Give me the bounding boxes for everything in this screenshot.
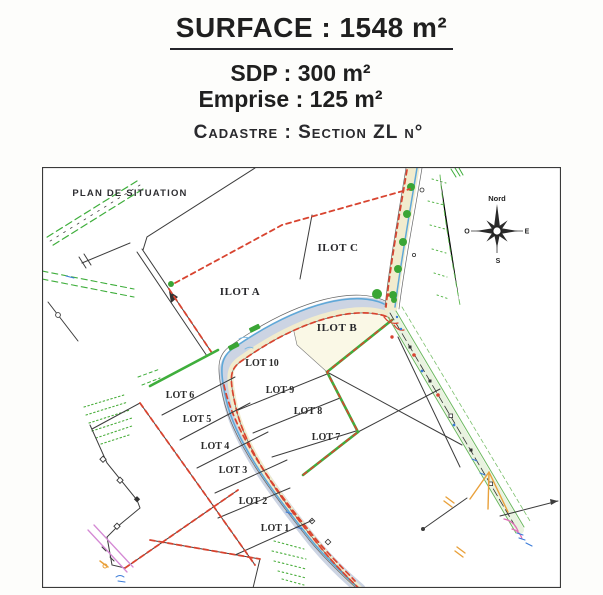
lot-10-label: LOT 10 bbox=[245, 358, 278, 369]
sdp-line: SDP : 300 m² bbox=[0, 60, 602, 87]
tree-icon bbox=[394, 265, 402, 273]
ilot-c-label: ILOT C bbox=[317, 242, 358, 254]
plan-title-label: PLAN DE SITUATION bbox=[72, 188, 187, 199]
lot-7-label: LOT 7 bbox=[312, 432, 340, 443]
ilot-a-label: ILOT A bbox=[220, 286, 260, 298]
lot-3-label: LOT 3 bbox=[219, 465, 247, 476]
compass-west-label: O bbox=[464, 229, 470, 236]
compass-south-label: S bbox=[496, 258, 501, 265]
lot-8-label: LOT 8 bbox=[294, 406, 322, 417]
lot-1-label: LOT 1 bbox=[261, 523, 289, 534]
lot-9-label: LOT 9 bbox=[266, 385, 294, 396]
surface-title-text: SURFACE : 1548 m² bbox=[170, 12, 453, 50]
compass-north-label: Nord bbox=[488, 194, 506, 203]
scanned-plan-page: { "header": { "surface": "SURFACE : 1548… bbox=[0, 0, 603, 595]
page-title: SURFACE : 1548 m² bbox=[10, 12, 603, 50]
cadastre-line: Cadastre : Section ZL n° bbox=[7, 122, 603, 144]
tree-icon bbox=[372, 289, 382, 299]
ilot-b-label: ILOT B bbox=[317, 322, 358, 334]
compass-east-label: E bbox=[525, 229, 530, 236]
tree-icon bbox=[403, 210, 411, 218]
tree-icon bbox=[399, 238, 407, 246]
lot-5-label: LOT 5 bbox=[183, 414, 211, 425]
emprise-line: Emprise : 125 m² bbox=[0, 86, 592, 113]
site-map: PLAN DE SITUATION ILOT A ILOT C ILOT B L… bbox=[42, 167, 561, 588]
lot-2-label: LOT 2 bbox=[239, 496, 267, 507]
lot-6-label: LOT 6 bbox=[166, 390, 194, 401]
lot-4-label: LOT 4 bbox=[201, 441, 229, 452]
tree-icon bbox=[168, 281, 174, 287]
